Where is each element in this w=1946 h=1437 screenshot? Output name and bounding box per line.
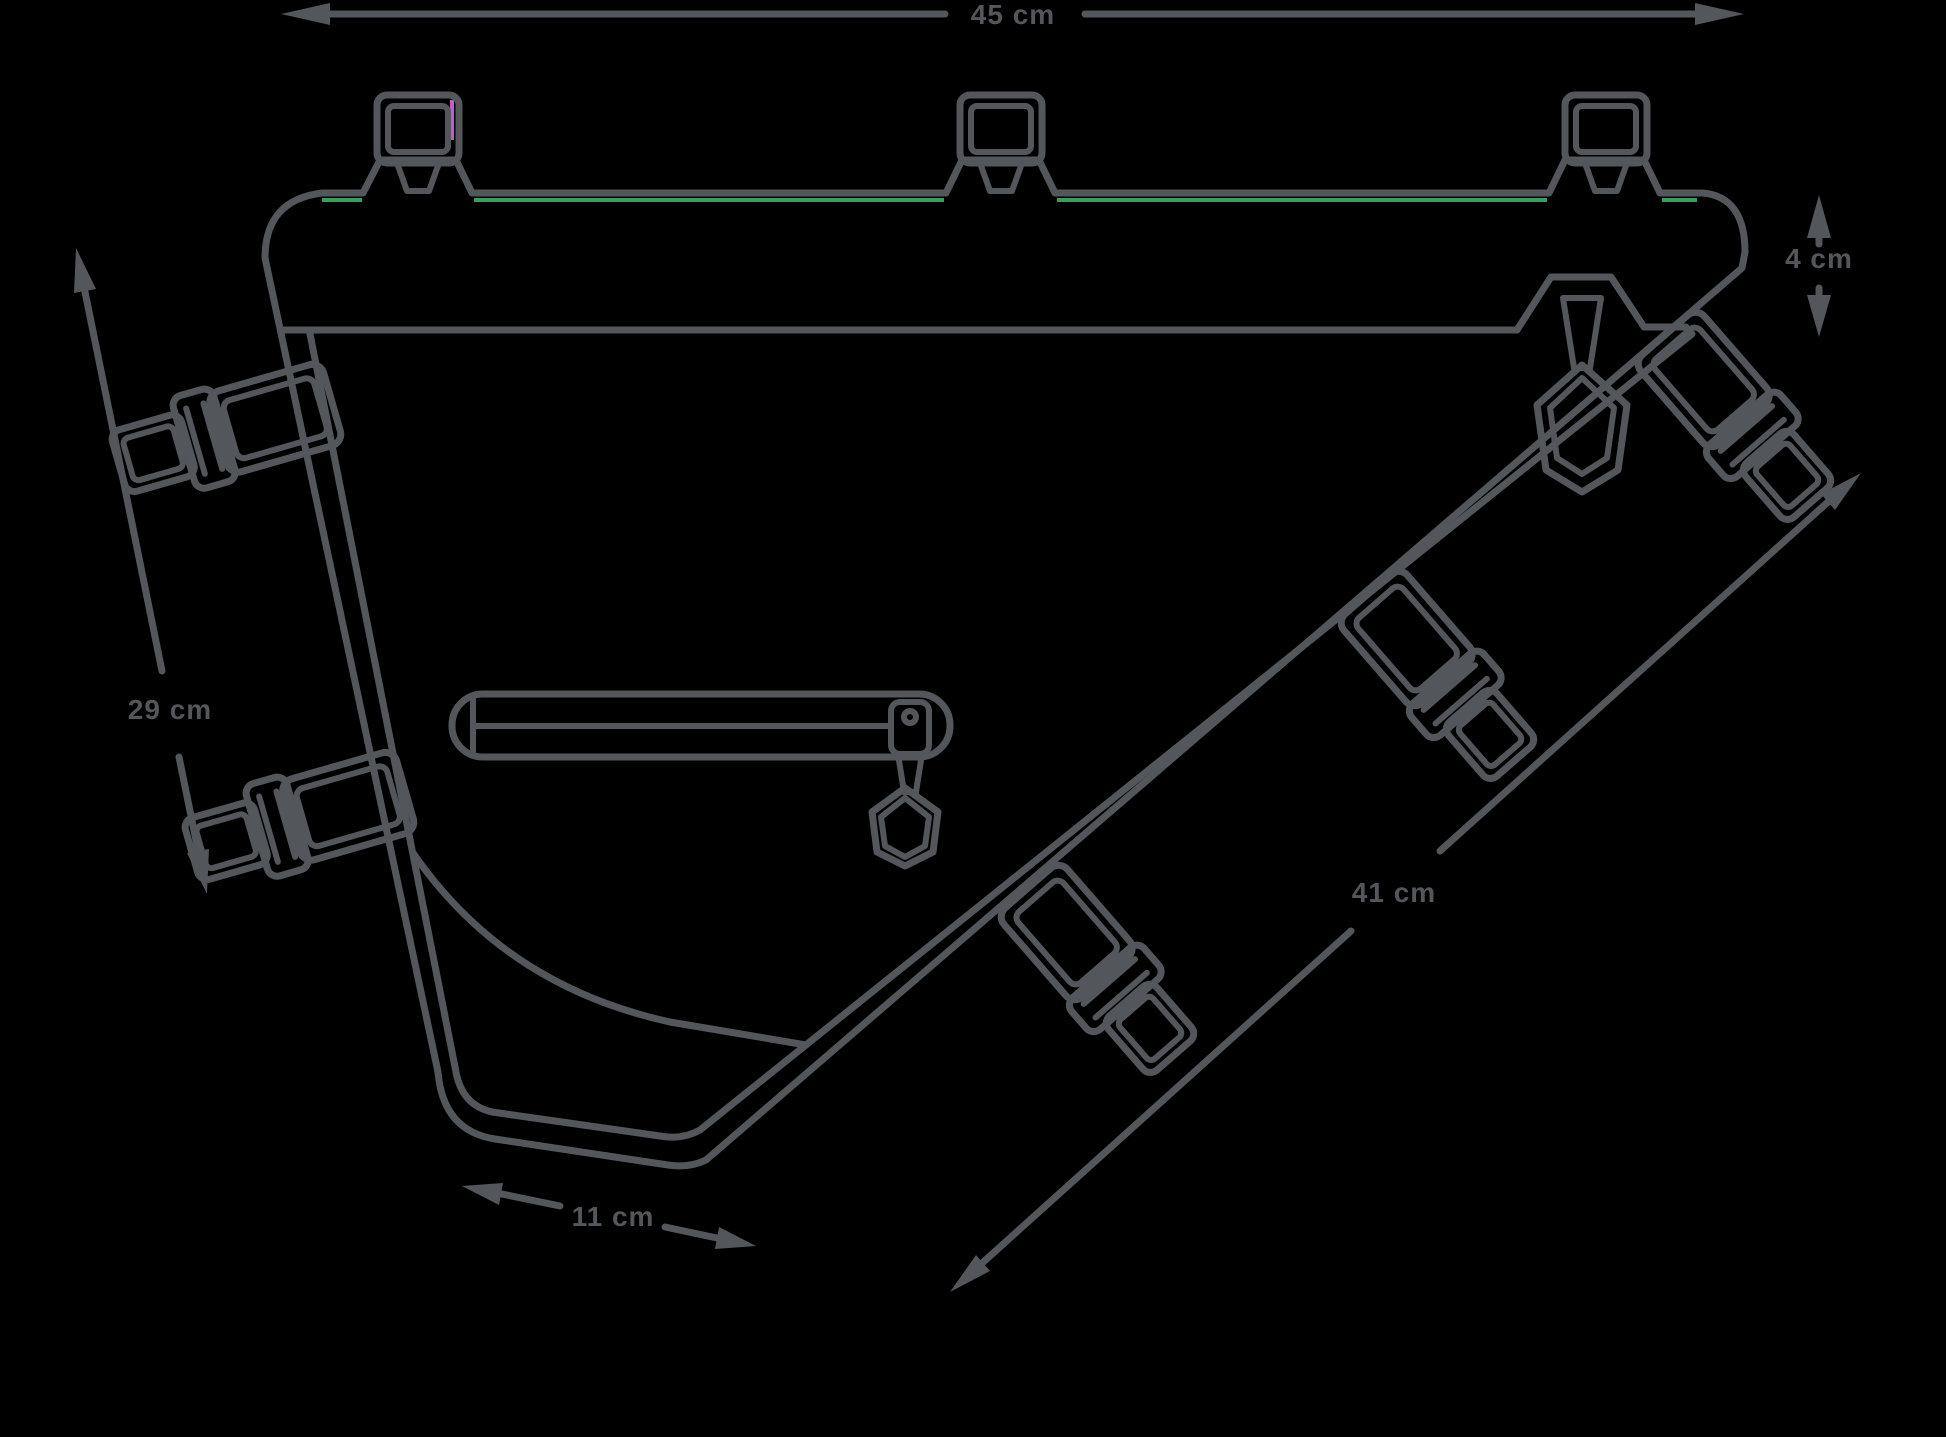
outer-silhouette [265,160,1745,1166]
top-tube-strap-2 [960,95,1042,191]
frame-pack-diagram: 45 cm 4 cm 29 cm 41 cm 11 cm [0,0,1946,1437]
dimension-label-right: 4 cm [1785,243,1853,274]
dimension-top-width: 45 cm [281,0,1744,30]
dimension-bottom-width: 11 cm [462,1183,756,1249]
corner-zipper-cord [1563,298,1601,368]
down-tube-strap-2 [1332,563,1550,794]
frame-pack-outline [265,100,1745,1166]
pocket-seam [413,853,806,1045]
dimension-label-top: 45 cm [971,0,1055,30]
arrowhead-down-icon [1807,295,1831,337]
frame-pack-line-art: 45 cm 4 cm 29 cm 41 cm 11 cm [0,0,1946,1437]
inner-seam [310,334,1692,1137]
arrowhead-left-icon [281,3,330,25]
main-zipper [452,694,950,866]
arrowhead-right-icon [1695,3,1744,25]
top-bar-bottom-seam [282,277,1686,330]
top-tube-strap-1 [377,95,459,191]
arrowhead-up-icon [1807,195,1831,238]
seat-tube-strap-1 [105,356,345,509]
down-tube-strap-1 [1629,304,1847,535]
arrowhead-down-icon [187,849,209,894]
dimension-left-height: 29 cm [74,248,212,894]
arrowhead-right-icon [715,1227,756,1249]
dimension-label-left: 29 cm [128,694,212,725]
corner-zipper-pull [1537,298,1627,492]
down-tube-strap-3 [992,857,1210,1088]
dimension-label-bottom: 11 cm [572,1201,655,1232]
top-tube-strap-3 [1565,95,1647,191]
dimension-label-diagonal: 41 cm [1352,877,1436,908]
dimension-bar-height: 4 cm [1785,195,1853,337]
